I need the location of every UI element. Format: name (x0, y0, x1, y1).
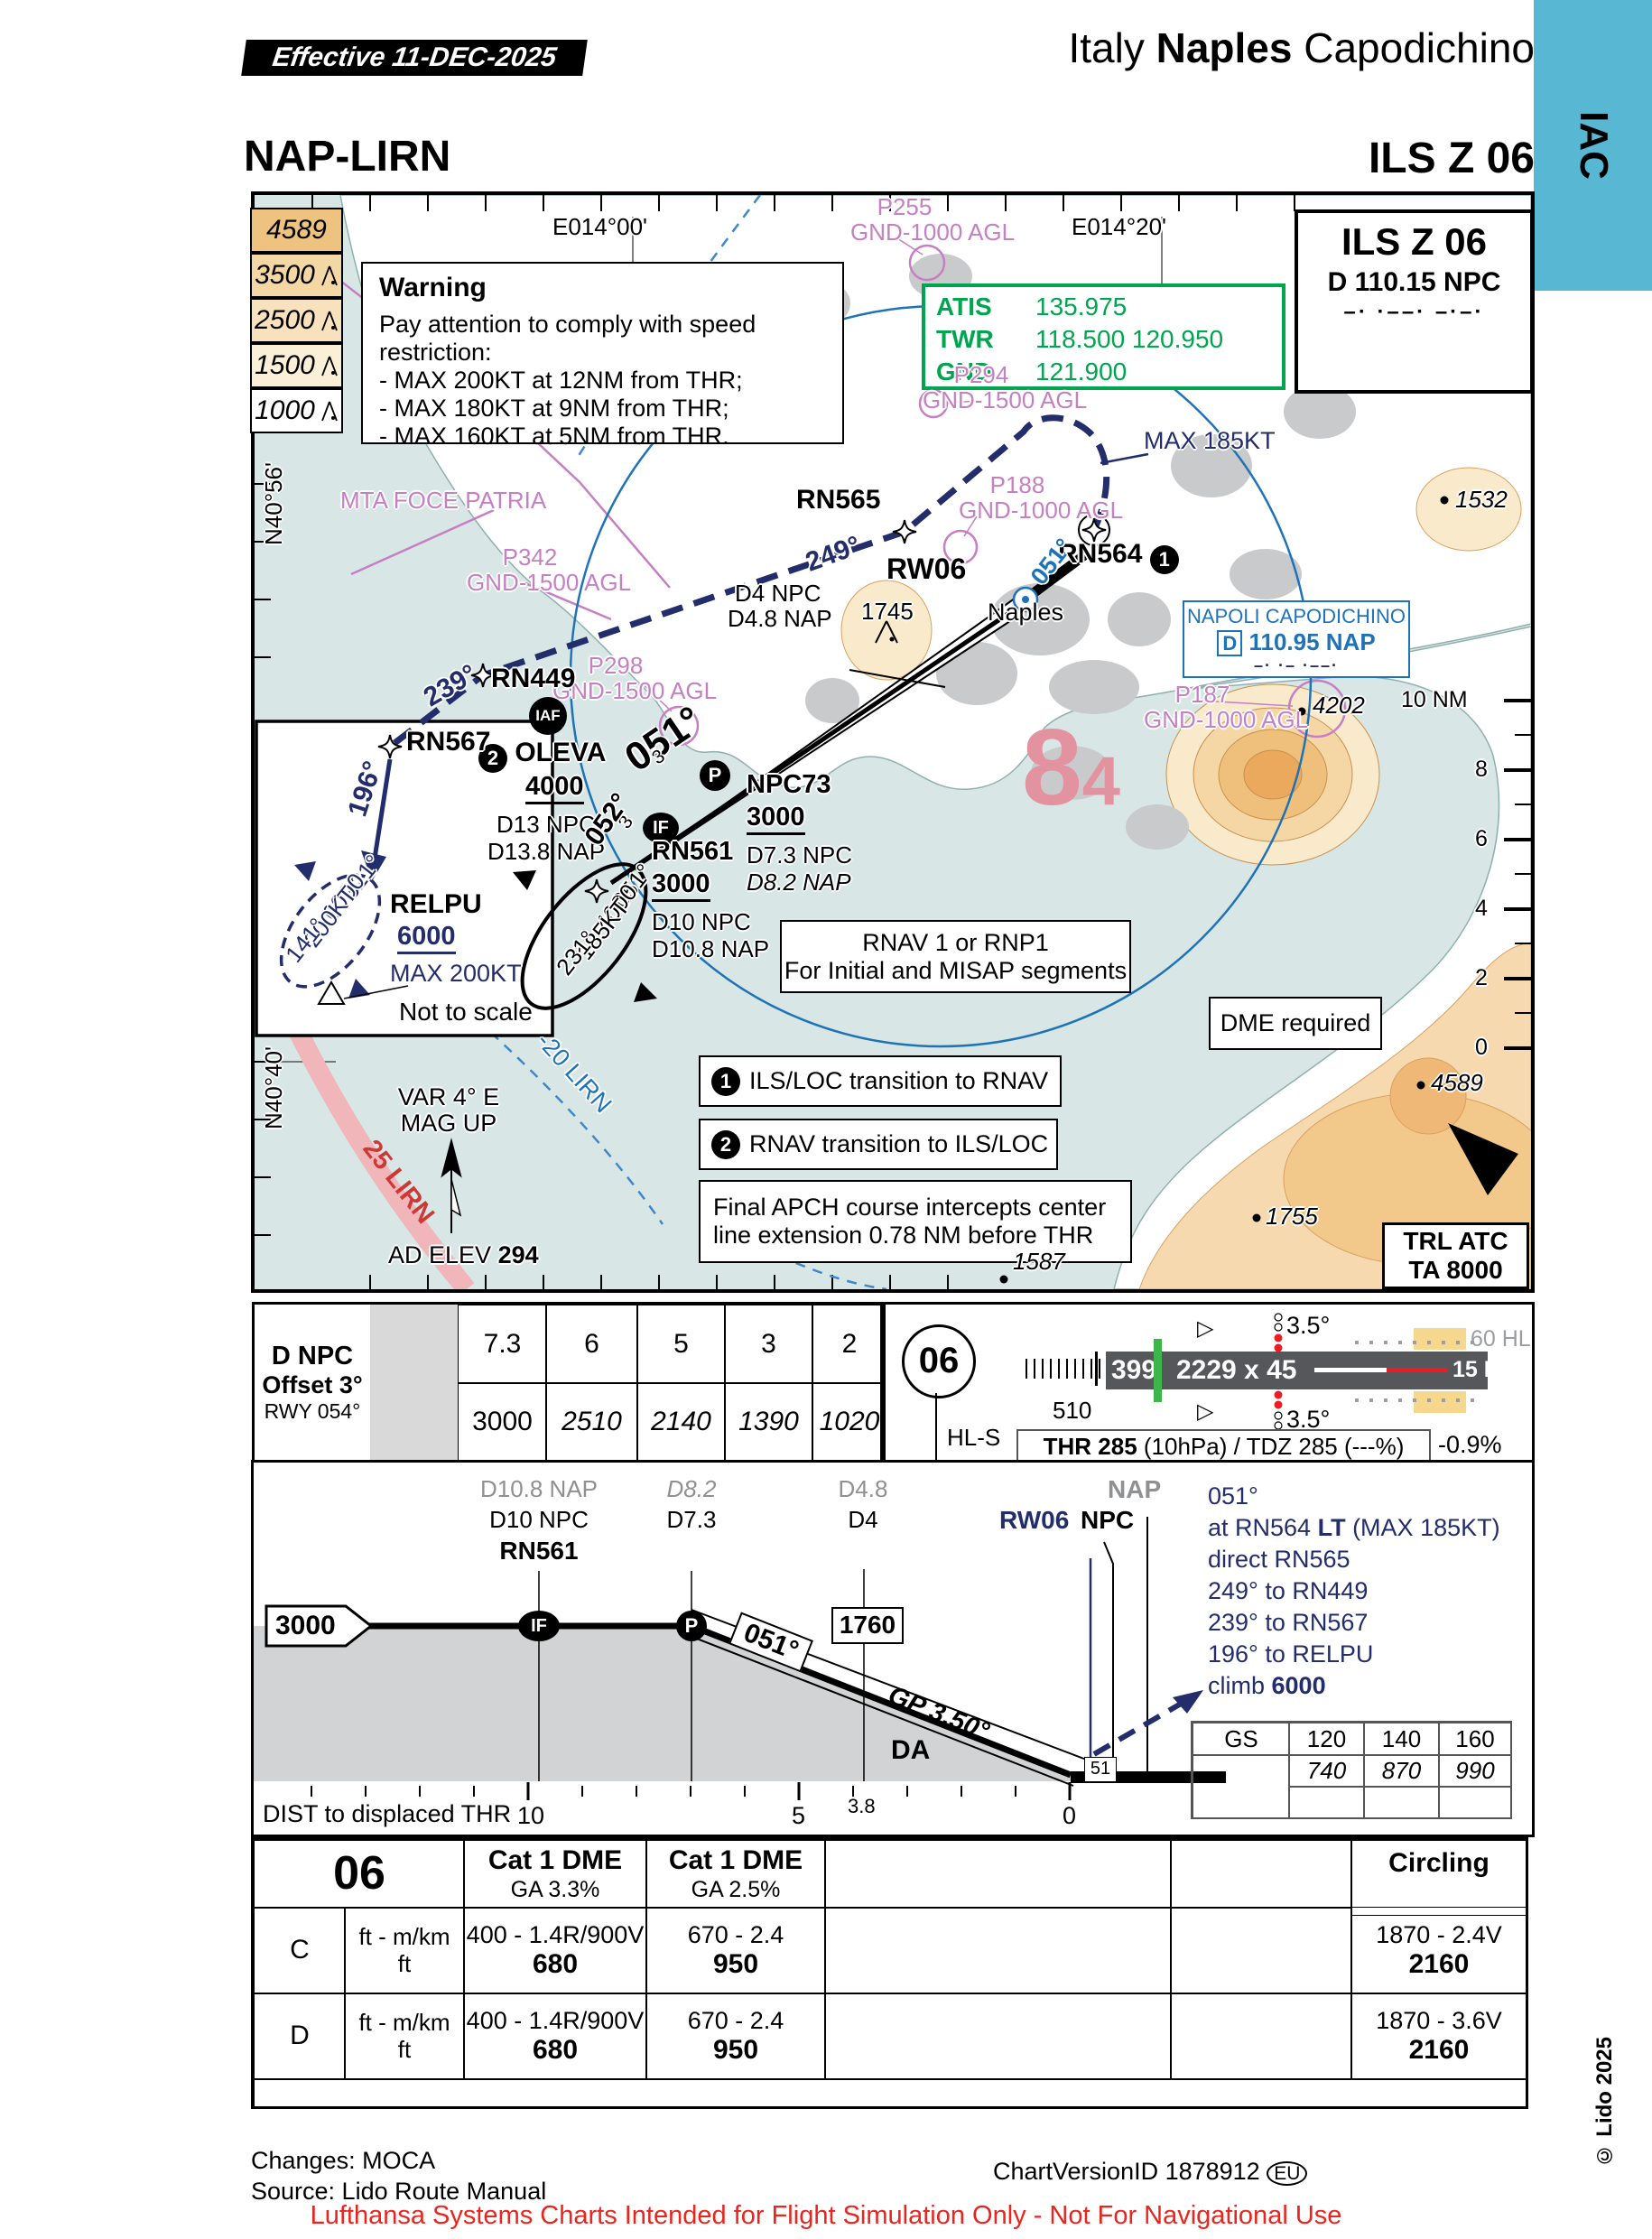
dme-table: D NPC Offset 3° RWY 054° 7.3 6 5 3 2 300… (252, 1302, 883, 1463)
fix-d82: D8.2 (642, 1475, 741, 1503)
fix-d73: D7.3 (642, 1506, 741, 1534)
dist-38: 3.8 (848, 1795, 876, 1818)
not-to-scale-label: Not to scale (399, 999, 533, 1026)
rn567-label: RN567 (406, 728, 490, 757)
dotted-lights-top (1355, 1341, 1481, 1344)
rn449-label: RN449 (491, 664, 575, 693)
hl-s-label: HL-S (947, 1424, 1000, 1452)
approach-light-patch-top (1414, 1328, 1466, 1350)
title-airport: Capodichino (1304, 24, 1535, 71)
peak-icon (320, 264, 339, 287)
footer-disclaimer: Lufthansa Systems Charts Intended for Fl… (0, 2201, 1652, 2231)
dist-scale-label: DIST to displaced THR (263, 1800, 511, 1828)
triangle-marker-top: ▷ (1197, 1315, 1213, 1342)
grid-mora: 84 (1022, 719, 1120, 816)
missed-approach-text: 051° at RN564 LT (MAX 185KT) direct RN56… (1208, 1481, 1500, 1702)
oleva-altitude: 4000 (525, 773, 584, 804)
p342-label: P342GND-1500 AGL (467, 545, 593, 595)
time-160: 990 (1438, 1754, 1512, 1788)
peak-icon (320, 309, 339, 332)
approach-light-patch-bottom (1414, 1391, 1466, 1413)
legend-1000: 1000 (250, 388, 343, 433)
dme-table-spacer (370, 1305, 459, 1460)
terrain-1745 (841, 581, 932, 680)
footer-changes: Changes: MOCA (251, 2147, 435, 2175)
meridian-label-e01400: E014°00' (552, 215, 647, 240)
dist-10: 10 (517, 1802, 544, 1830)
min-d-cat1b: 670 - 2.4950 (645, 1993, 826, 2080)
iac-tab-label: IAC (1571, 111, 1616, 180)
legend-3500: 3500 (250, 253, 343, 298)
rw06-label: RW06 (886, 554, 966, 585)
trl-box: TRL ATCTA 8000 (1382, 1222, 1529, 1289)
d48-nap: D4.8 NAP (728, 607, 832, 632)
displaced-threshold-bar (1154, 1339, 1162, 1402)
elev-4202: 4202 (1313, 693, 1365, 719)
profile-altitude: 3000 (275, 1611, 336, 1641)
ils-ident-title: ILS Z 06 (1298, 220, 1530, 264)
peak-icon (320, 399, 339, 423)
note1-box: 1ILS/LOC transition to RNAV (699, 1055, 1062, 1107)
parallel-n4040: N40°40' (262, 1046, 287, 1129)
missed-line-2: at RN564 LT (MAX 185KT) (1208, 1512, 1500, 1544)
min-c-cat1a: 400 - 1.4R/900V680 (463, 1907, 647, 1994)
fix-nap: NAP (1108, 1475, 1161, 1504)
gs-140: 140 (1363, 1723, 1440, 1756)
p188-label: P188GND-1000 AGL (959, 473, 1076, 523)
min-c-circling: 1870 - 2.4V2160 (1350, 1907, 1527, 1994)
warning-intro: Pay attention to comply with speed restr… (379, 311, 826, 367)
rn564-label: RN564 1 (1058, 540, 1179, 574)
missed-climb-path (1094, 1700, 1187, 1754)
ils-ident-morse: –· ·––· –·–· (1298, 300, 1530, 325)
hl15-label: 15 HL (1452, 1357, 1514, 1383)
runway-id-leader (935, 1393, 937, 1460)
npc-line (1104, 1542, 1113, 1772)
dme-dist-5: 2 (812, 1305, 887, 1384)
thr-elevation-box: THR 285 (10hPa) / TDZ 285 (---%) (1016, 1429, 1431, 1463)
fix-rw06: RW06 (999, 1506, 1069, 1535)
dme-alt-1: 3000 (458, 1382, 547, 1462)
warning-b2: - MAX 180KT at 9NM from THR; (379, 395, 826, 423)
footer-copyright: © Lido 2025 (1592, 2037, 1618, 2167)
p255-label: P255GND-1000 AGL (850, 195, 959, 245)
napoli-vor-box: NAPOLI CAPODICHINO D 110.95 NAP –· ·– ·–… (1183, 600, 1410, 678)
minimums-table: 06 Cat 1 DMEGA 3.3% Cat 1 DMEGA 2.5% Cir… (251, 1837, 1528, 2109)
warning-title: Warning (379, 273, 826, 303)
twr-label: TWR (936, 323, 1035, 356)
d4-npc: D4 NPC (735, 581, 821, 607)
runway-diagram: 06 HL-S 510 399 2229 x 45 15 HL 60 HL 3.… (883, 1302, 1535, 1463)
chart-page: Effective 11-DEC-2025 Italy Naples Capod… (0, 0, 1652, 2239)
relpu-max-speed: MAX 200KT (390, 961, 522, 987)
dme-alt-4: 1390 (724, 1382, 813, 1462)
legend-4589: 4589 (250, 208, 343, 253)
gs-120: 120 (1288, 1723, 1365, 1756)
npc73-d73npc: D7.3 NPC (747, 843, 852, 869)
npc73-d82nap: D8.2 NAP (747, 870, 851, 896)
atis-freq: 135.975 (1035, 291, 1127, 323)
iaf-badge: IAF (529, 697, 567, 735)
dme-alt-5: 1020 (812, 1382, 887, 1462)
elev-1532: 1532 (1455, 488, 1508, 513)
missed-line-5: 239° to RN567 (1208, 1607, 1500, 1639)
missed-line-6: 196° to RELPU (1208, 1639, 1500, 1670)
meridian-label-e01420: E014°20' (1072, 215, 1166, 240)
parallel-n4056: N40°56' (262, 462, 287, 545)
warning-b3: - MAX 160KT at 5NM from THR. (379, 423, 826, 451)
scale-2: 2 (1475, 966, 1488, 990)
elev-1755: 1755 (1266, 1204, 1318, 1230)
note3-box: Final APCH course intercepts centerline … (699, 1180, 1132, 1263)
time-120: 740 (1288, 1754, 1365, 1788)
min-cat-c: C (254, 1907, 346, 1994)
dme-symbol: D (1217, 630, 1242, 656)
dme-dist-4: 3 (724, 1305, 813, 1384)
lighting-white (1314, 1368, 1387, 1372)
title-city: Naples (1156, 24, 1293, 71)
min-rwy: 06 (254, 1840, 465, 1909)
warning-box: Warning Pay attention to comply with spe… (361, 262, 844, 444)
dme-dist-2: 6 (545, 1305, 638, 1384)
min-d-units: ft - m/kmft (344, 1993, 465, 2080)
footer-version: ChartVersionID 1878912 EU (993, 2158, 1307, 2186)
napoli-vor-freq: 110.95 NAP (1248, 628, 1375, 655)
min-d-cat1a: 400 - 1.4R/900V680 (463, 1993, 647, 2080)
dist-5: 5 (792, 1802, 805, 1830)
min-d-circling: 1870 - 3.6V2160 (1350, 1993, 1527, 2080)
legend-1500: 1500 (250, 343, 343, 388)
north-arrow-vane (451, 1179, 460, 1215)
fix-d10npc: D10 NPC (479, 1506, 599, 1534)
elev-4589: 4589 (1431, 1071, 1483, 1096)
elev-1745: 1745 (861, 599, 914, 625)
legend-2500: 2500 (250, 298, 343, 343)
fix-rn561: RN561 (479, 1537, 599, 1565)
papi-angle-top: 3.5° (1286, 1312, 1330, 1340)
threshold-major-tick (1095, 1352, 1098, 1386)
gs-header: GS (1193, 1723, 1290, 1756)
ils-ident-box: ILS Z 06 D 110.15 NPC –· ·––· –·–· (1295, 209, 1534, 394)
dme-dist-1: 7.3 (458, 1305, 547, 1384)
min-cat1a-header: Cat 1 DMEGA 3.3% (463, 1840, 647, 1909)
eu-badge: EU (1267, 2161, 1307, 2186)
atis-label: ATIS (936, 291, 1035, 323)
dme-alt-3: 2140 (636, 1382, 726, 1462)
gs-blank (1193, 1754, 1290, 1819)
relpu-label: RELPU (390, 890, 482, 919)
oleva-label: 2 OLEVA (478, 739, 606, 773)
dist-major-ticks (528, 1782, 1070, 1800)
lighting-red (1387, 1368, 1447, 1372)
hl60-label: 60 HL (1471, 1326, 1531, 1352)
scale-6: 6 (1475, 827, 1488, 851)
triangle-marker-bottom: ▷ (1197, 1398, 1213, 1425)
dist-minor-ticks (311, 1786, 1016, 1797)
naples-label: Naples (988, 599, 1063, 626)
scale-8: 8 (1475, 757, 1488, 782)
relpu-altitude: 6000 (397, 923, 456, 954)
tch-box: 51 (1084, 1757, 1117, 1782)
fix-d4: D4 (813, 1506, 913, 1534)
displaced-distance: 510 (1053, 1397, 1091, 1425)
dme-dist-3: 5 (636, 1305, 726, 1384)
scale-0: 0 (1475, 1036, 1488, 1060)
scale-10nm: 10 NM (1401, 688, 1468, 712)
warning-b1: - MAX 200KT at 12NM from THR; (379, 367, 826, 395)
scale-4: 4 (1475, 897, 1488, 921)
min-circling-header: Circling (1350, 1840, 1527, 1916)
rn561-d108nap: D10.8 NAP (652, 937, 769, 962)
npc73-label: NPC73 (747, 771, 831, 799)
min-c-cat1b: 670 - 2.4950 (645, 1907, 826, 1994)
npc73-altitude: 3000 (747, 804, 805, 835)
title-country: Italy (1068, 24, 1144, 71)
twr-freq: 118.500 120.950 (1035, 323, 1223, 356)
profile-p-badge: P (676, 1611, 707, 1641)
oleva-d138nap: D13.8 NAP (487, 840, 605, 865)
missed-line-7: climb 6000 (1208, 1670, 1500, 1702)
variation-label: VAR 4° EMAG UP (372, 1084, 525, 1136)
runway-number: 399 (1111, 1355, 1156, 1386)
min-c-units: ft - m/kmft (344, 1907, 465, 1994)
ad-elev-label: AD ELEV 294 (388, 1242, 539, 1268)
fix-npc: NPC (1081, 1506, 1134, 1535)
gs-table: GS 120 140 160 740 870 990 (1191, 1721, 1512, 1819)
crossing-altitude-box: 1760 (831, 1607, 904, 1644)
iac-tab: IAC (1534, 0, 1652, 291)
mta-label: MTA FOCE PATRIA (340, 488, 546, 514)
da-label: DA (891, 1735, 930, 1766)
p294-label: P294GND-1500 AGL (923, 363, 1040, 413)
time-140: 870 (1363, 1754, 1440, 1788)
missed-climb-arrow (1173, 1690, 1203, 1714)
min-cat1b-header: Cat 1 DMEGA 2.5% (645, 1840, 826, 1909)
napoli-vor-name: NAPOLI CAPODICHINO (1184, 605, 1408, 628)
profile-view: D10.8 NAP D10 NPC RN561 D8.2 D7.3 D4.8 D… (251, 1460, 1535, 1837)
dme-table-header: D NPC Offset 3° RWY 054° (255, 1305, 371, 1460)
badge-1: 1 (1150, 545, 1179, 574)
elev-1587: 1587 (1013, 1250, 1065, 1275)
gnd-freq: 121.900 (1035, 356, 1127, 388)
rn561-altitude: 3000 (652, 870, 710, 902)
map-panel: 4589 3500 2500 1500 1000 Warning Pay att… (251, 191, 1535, 1293)
runway-id-circle: 06 (902, 1324, 976, 1398)
fix-d108nap: D10.8 NAP (479, 1475, 599, 1503)
missed-line-3: direct RN565 (1208, 1544, 1500, 1575)
fix-d48: D4.8 (813, 1475, 913, 1503)
rn561-d10npc: D10 NPC (652, 910, 751, 935)
missed-line-4: 249° to RN449 (1208, 1575, 1500, 1607)
chart-title: Italy Naples Capodichino (0, 23, 1535, 72)
dme-required-box: DME required (1209, 997, 1382, 1050)
rnav-note-box: RNAV 1 or RNP1For Initial and MISAP segm… (780, 920, 1131, 993)
dotted-lights-bottom (1355, 1398, 1481, 1402)
peak-icon (320, 354, 339, 377)
oleva-hold-arrow2 (634, 982, 657, 1002)
note2-box: 2RNAV transition to ILS/LOC (699, 1119, 1058, 1170)
napoli-vor-morse: –· ·– ·––· (1184, 656, 1408, 675)
profile-if-badge: IF (518, 1611, 560, 1641)
p-badge: P (700, 760, 730, 791)
gs-160: 160 (1438, 1723, 1512, 1756)
p187-label: P187GND-1000 AGL (1144, 683, 1261, 732)
min-empty-row (254, 2078, 1527, 2108)
max-185kt: MAX 185KT (1144, 428, 1276, 454)
rn561-label: RN561 (652, 838, 733, 866)
rn565-label: RN565 (796, 486, 880, 515)
dist-0: 0 (1063, 1802, 1076, 1830)
note1-badge: 1 (711, 1067, 740, 1096)
ils-ident-freq: D 110.15 NPC (1298, 267, 1530, 298)
procedure-title: ILS Z 06 (0, 134, 1535, 183)
missed-line-1: 051° (1208, 1481, 1500, 1512)
note2-badge: 2 (711, 1130, 740, 1159)
min-cat-d: D (254, 1993, 346, 2080)
runway-slope: -0.9% (1438, 1431, 1502, 1459)
dme-alt-2: 2510 (545, 1382, 638, 1462)
